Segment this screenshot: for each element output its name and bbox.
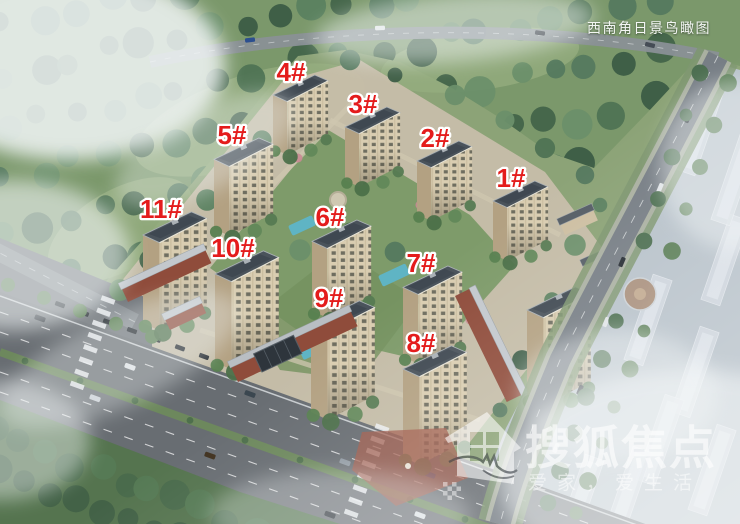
building-label-8: 8# xyxy=(407,328,436,358)
building-label-6: 6# xyxy=(316,202,345,232)
aerial-rendering: 4#3#2#1#5#6#7#11#10#9#8# 西南角日景鸟瞰图 搜狐焦点 爱… xyxy=(0,0,740,524)
building-label-11: 11# xyxy=(140,194,182,224)
watermark-tagline: 爱家，爱生活 xyxy=(528,472,702,494)
building-label-5: 5# xyxy=(218,120,247,150)
building-label-10: 10# xyxy=(211,233,255,263)
building-label-2: 2# xyxy=(421,123,450,153)
view-caption: 西南角日景鸟瞰图 xyxy=(587,20,711,36)
building-label-9: 9# xyxy=(315,283,344,313)
building-label-4: 4# xyxy=(277,57,306,87)
scene-svg: 4#3#2#1#5#6#7#11#10#9#8# 西南角日景鸟瞰图 搜狐焦点 爱… xyxy=(0,0,740,524)
building-label-3: 3# xyxy=(349,89,378,119)
building-label-1: 1# xyxy=(497,163,526,193)
watermark-brand: 搜狐焦点 xyxy=(525,422,717,474)
building-label-7: 7# xyxy=(407,248,436,278)
